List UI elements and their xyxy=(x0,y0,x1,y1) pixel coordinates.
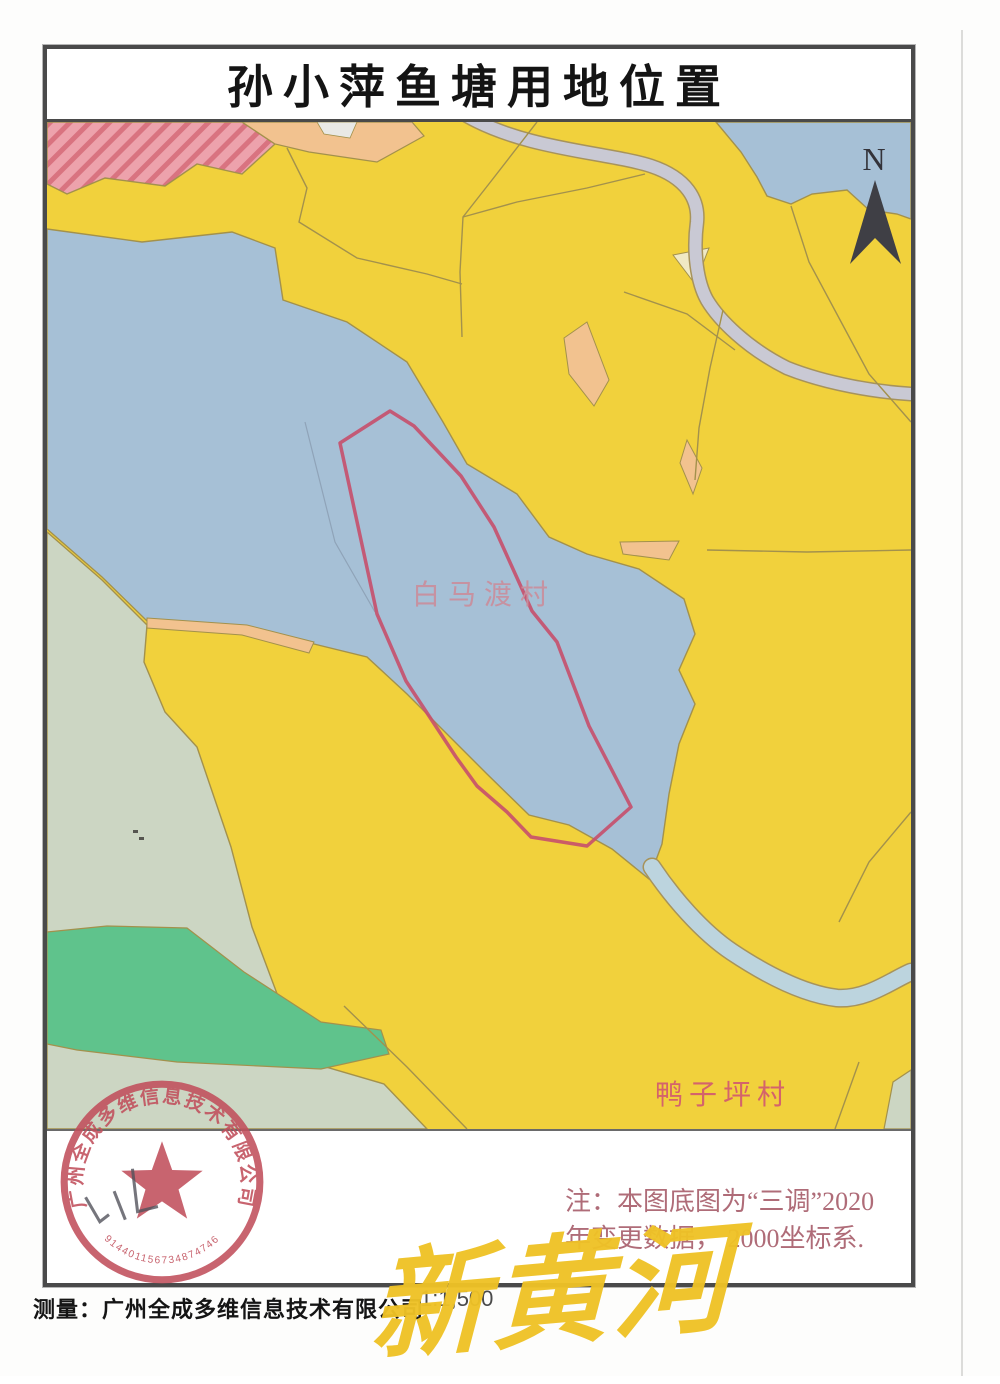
village-label-yaziping: 鸭子坪村 xyxy=(655,1079,791,1111)
paper-edge-line xyxy=(961,30,963,1376)
village-label-baimadu: 白马渡村 xyxy=(412,579,556,611)
stamp-number-text: 914401156734874746 xyxy=(102,1233,222,1266)
page-title: 孙小萍鱼塘用地位置 xyxy=(227,51,731,117)
scanned-page: 孙小萍鱼塘用地位置 xyxy=(0,0,1000,1376)
surveyor-line: 测量：广州全成多维信息技术有限公司 xyxy=(33,1292,424,1324)
watermark: 新黄河 xyxy=(369,1180,737,1384)
north-label: N xyxy=(862,141,885,177)
title-band: 孙小萍鱼塘用地位置 xyxy=(47,49,911,122)
company-stamp: 广州全成多维信息技术有限公司 914401156734874746 xyxy=(55,1075,269,1289)
map-area: 白马渡村 鸭子坪村 N xyxy=(47,122,911,1131)
land-use-map: 白马渡村 鸭子坪村 N xyxy=(47,122,911,1129)
